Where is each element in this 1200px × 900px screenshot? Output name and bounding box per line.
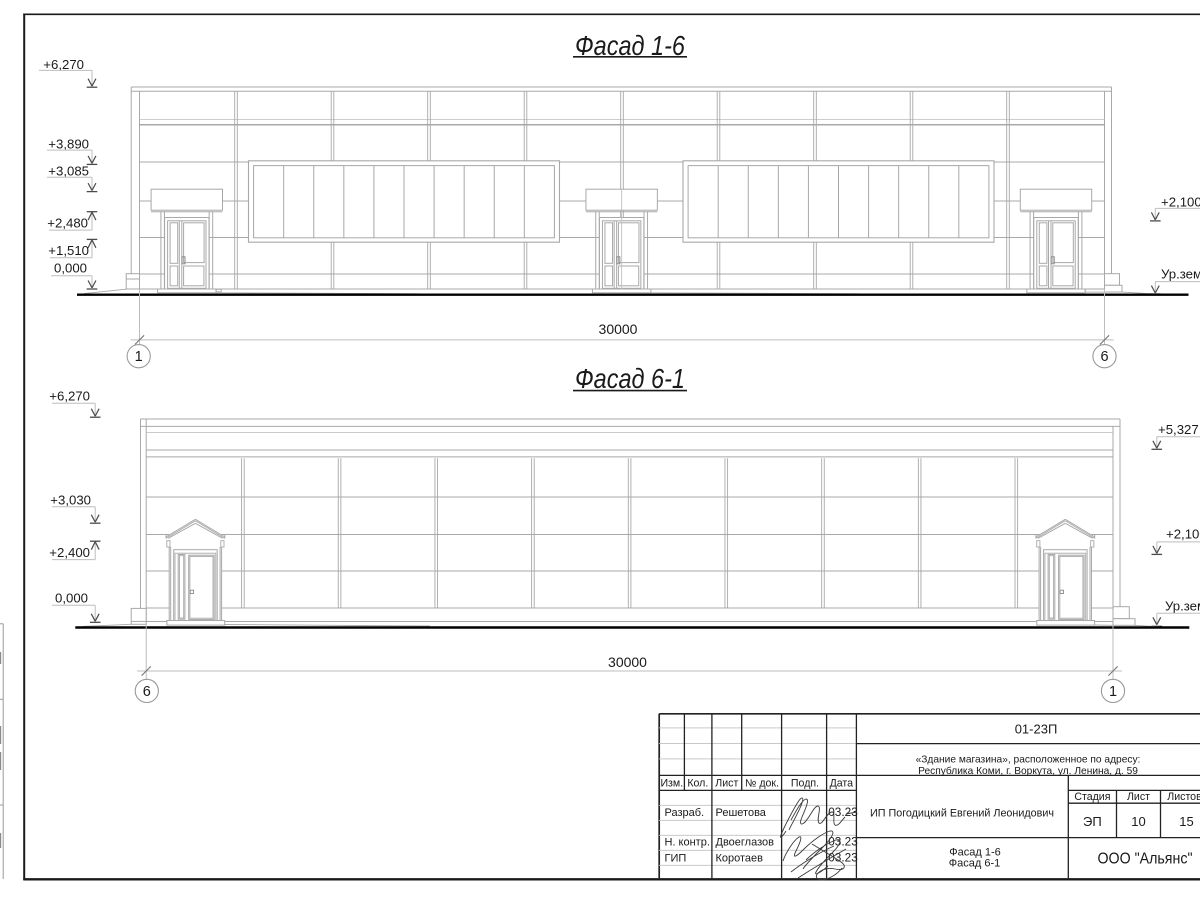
svg-text:ИП Погодицкий Евгений Леонидов: ИП Погодицкий Евгений Леонидович [870, 807, 1054, 819]
svg-text:Стадия: Стадия [1074, 791, 1110, 803]
svg-text:+3,085: +3,085 [48, 164, 89, 179]
svg-text:Разраб.: Разраб. [665, 807, 705, 819]
svg-text:Фасад 6-1: Фасад 6-1 [949, 857, 1000, 869]
svg-text:01-23П: 01-23П [1015, 722, 1058, 737]
svg-text:Лист: Лист [715, 777, 738, 789]
svg-text:«Здание магазина», расположенн: «Здание магазина», расположенное по адре… [916, 755, 1141, 766]
svg-text:№ док.: № док. [745, 777, 779, 789]
svg-text:15: 15 [1179, 814, 1193, 829]
svg-text:6: 6 [1100, 349, 1108, 365]
svg-text:+2,400: +2,400 [49, 545, 90, 560]
svg-text:1: 1 [135, 349, 143, 365]
svg-text:+6,270: +6,270 [49, 388, 90, 403]
svg-text:Коротаев: Коротаев [716, 853, 764, 865]
svg-text:ООО "Альянс": ООО "Альянс" [1098, 851, 1193, 868]
svg-text:Фасад 6-1: Фасад 6-1 [575, 363, 685, 394]
svg-text:+2,100: +2,100 [1166, 526, 1200, 541]
svg-text:Дата: Дата [830, 777, 854, 789]
svg-text:Лист: Лист [1127, 791, 1150, 803]
svg-text:0,000: 0,000 [54, 260, 87, 275]
svg-text:+5,327: +5,327 [1158, 422, 1199, 437]
svg-text:30000: 30000 [599, 321, 638, 337]
svg-text:Листов: Листов [1167, 791, 1200, 803]
svg-text:6: 6 [143, 684, 151, 700]
svg-text:+2,480: +2,480 [47, 216, 88, 231]
svg-text:Двоеглазов: Двоеглазов [716, 837, 775, 849]
svg-text:+2,100: +2,100 [1161, 194, 1200, 209]
svg-text:+3,890: +3,890 [48, 136, 89, 151]
svg-text:Н. контр.: Н. контр. [665, 837, 710, 849]
svg-text:ЭП: ЭП [1083, 814, 1102, 829]
svg-text:Кол.: Кол. [687, 777, 708, 789]
svg-text:Решетова: Решетова [716, 807, 767, 819]
svg-text:+1,510: +1,510 [48, 243, 89, 258]
svg-text:+6,270: +6,270 [43, 57, 84, 72]
svg-text:10: 10 [1131, 814, 1145, 829]
svg-text:Республика Коми, г. Воркута, у: Республика Коми, г. Воркута, ул. Ленина,… [918, 765, 1138, 777]
svg-text:Ур.земли: Ур.земли [1165, 598, 1200, 613]
svg-text:Ур.земли: Ур.земли [1161, 266, 1200, 281]
svg-text:30000: 30000 [608, 654, 647, 670]
svg-text:0,000: 0,000 [55, 590, 88, 605]
svg-text:ГИП: ГИП [665, 853, 687, 865]
svg-text:+3,030: +3,030 [50, 492, 91, 507]
svg-text:1: 1 [1109, 684, 1117, 700]
svg-text:Подп.: Подп. [791, 777, 819, 789]
svg-text:Изм.: Изм. [660, 777, 683, 789]
